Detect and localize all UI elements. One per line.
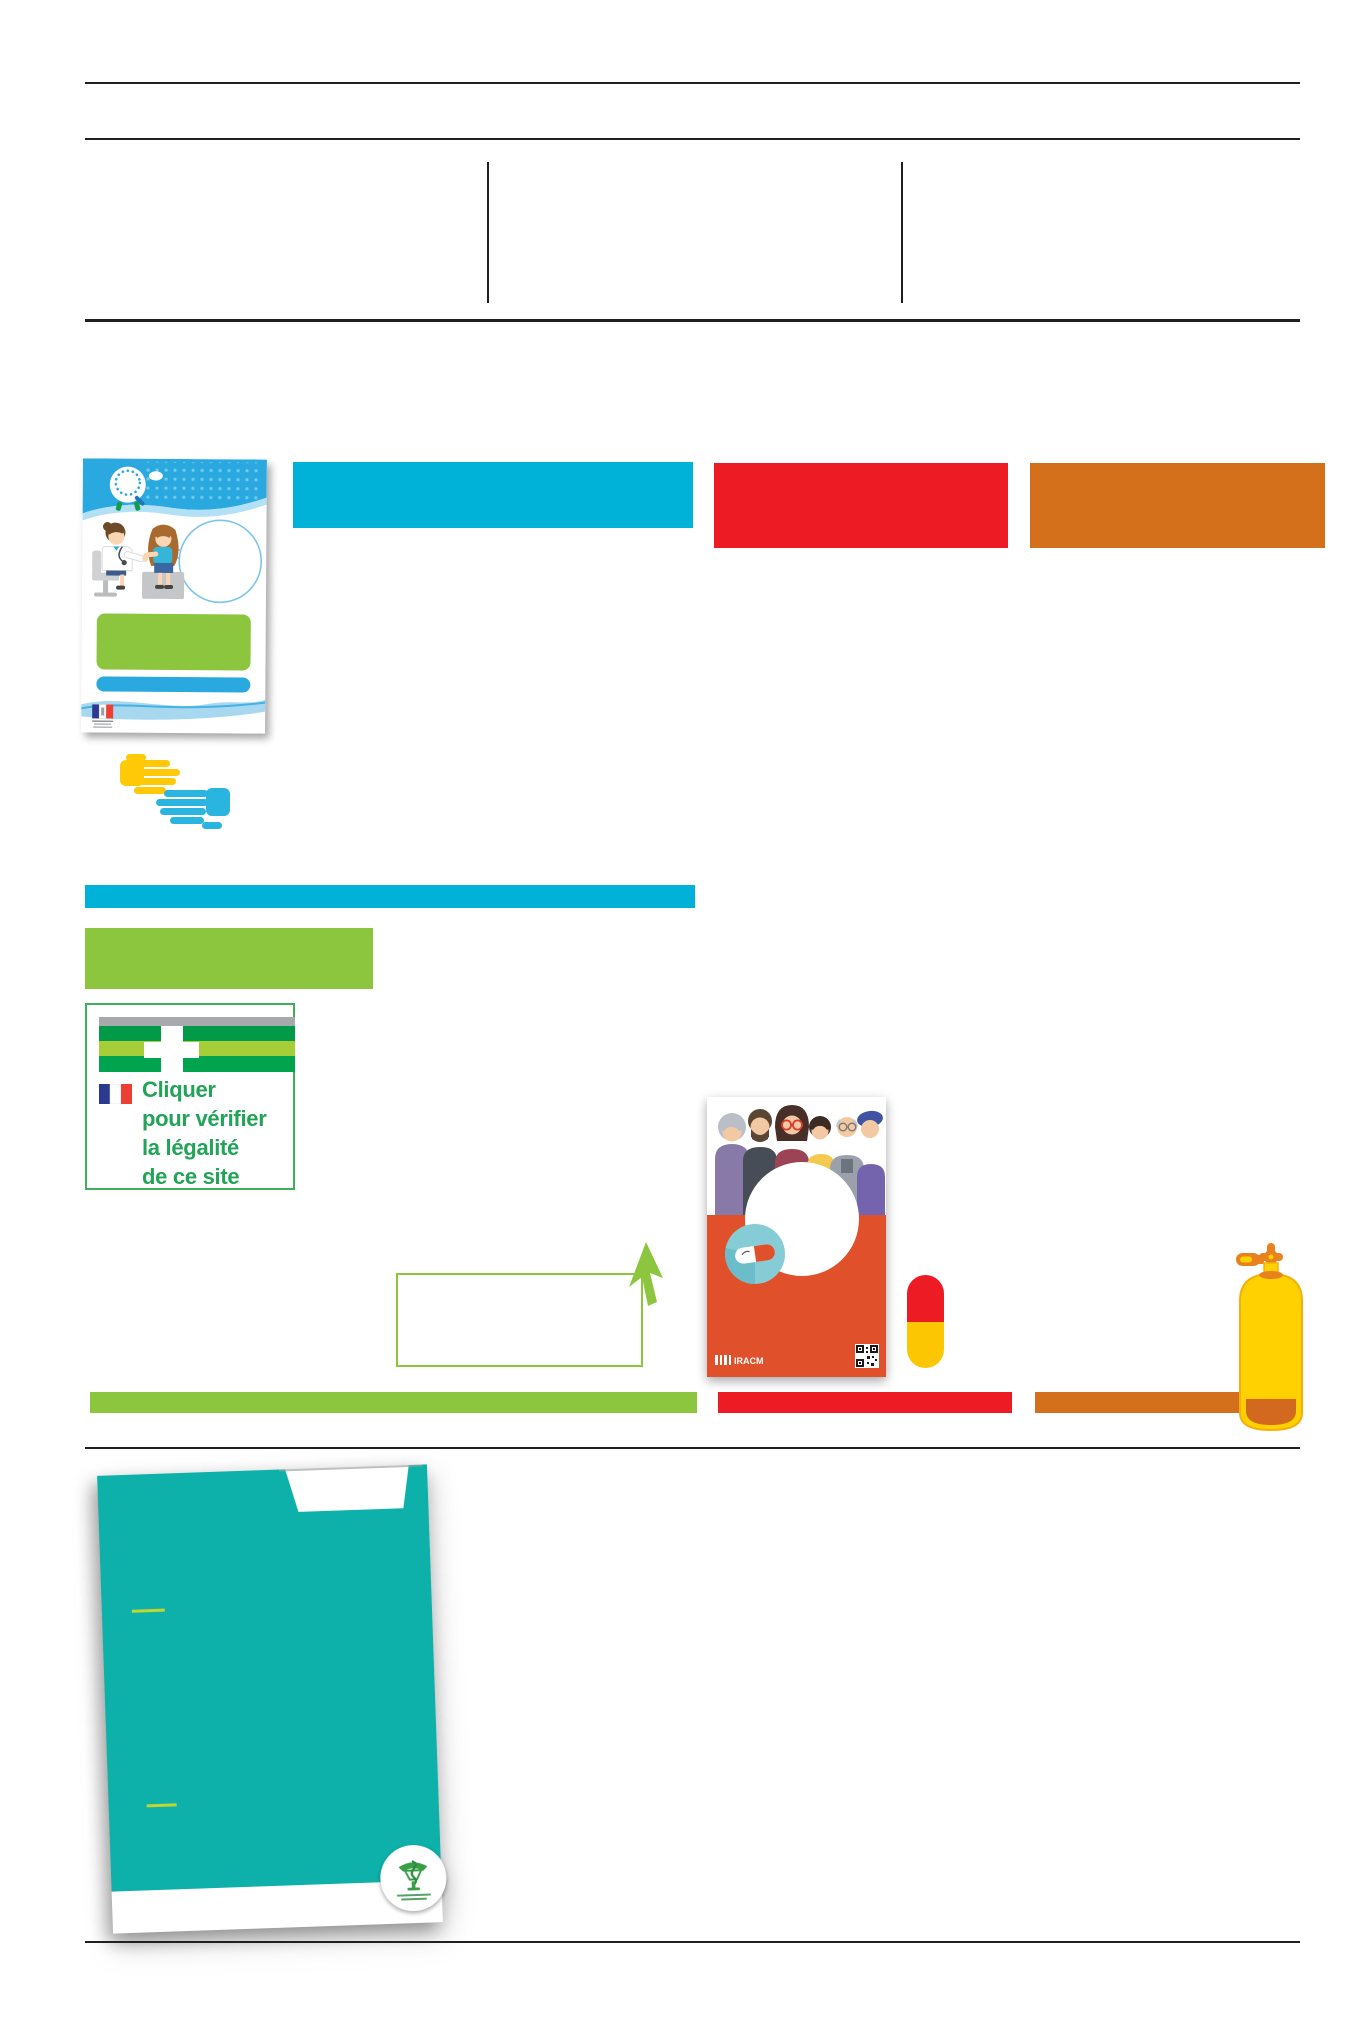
hands-icon [118, 752, 233, 830]
badge-text-line-1 [397, 1894, 431, 1897]
doctor-patient-illustration [92, 519, 262, 602]
summary-table [85, 162, 1300, 303]
capsule-badge [725, 1224, 785, 1284]
badge-text-line-2 [401, 1898, 427, 1901]
verify-line-1: Cliquer [142, 1075, 292, 1104]
top-rule-1 [85, 82, 1300, 84]
envelope-dash-2 [147, 1803, 177, 1807]
mid-rule [85, 1447, 1300, 1449]
bottom-rule [85, 1941, 1300, 1943]
iracm-label: IRACM [734, 1356, 764, 1366]
table-bottom-rule [85, 319, 1300, 322]
table-column-2 [489, 162, 899, 303]
leaflet-cyan-bar [96, 676, 250, 692]
table-column-3 [903, 162, 1300, 303]
leaflet-green-panel [96, 613, 250, 670]
footer-bar-orange [1035, 1392, 1250, 1413]
envelope-dash-1 [132, 1609, 165, 1613]
pharmacy-cross-icon [99, 1017, 295, 1072]
headline-block-red [714, 463, 1008, 548]
verify-line-2: pour vérifier [142, 1104, 292, 1133]
cursor-icon [616, 1240, 668, 1310]
rf-logo-icon [92, 704, 113, 727]
doctor-patient [81, 458, 267, 733]
top-rule-2 [85, 138, 1300, 140]
verify-site-logo[interactable]: Cliquer pour vérifier la légalité de ce … [85, 1003, 295, 1190]
capsule-icon [907, 1275, 944, 1368]
yellow-hand [120, 754, 180, 794]
capsule-yellow-half [907, 1322, 944, 1369]
verify-line-3: la légalité [142, 1133, 292, 1162]
subhead-block-green [85, 928, 373, 989]
table-column-1 [85, 162, 485, 303]
iracm-poster: IRACM [707, 1097, 886, 1377]
cyan-hand [156, 788, 230, 829]
section-bar-cyan [85, 885, 695, 908]
capsule-red-half [907, 1275, 944, 1322]
footer-bar-red [718, 1392, 1012, 1413]
gas-cylinder-icon [1234, 1241, 1308, 1433]
envelope [97, 1464, 443, 1933]
headline-block-cyan [293, 462, 693, 528]
document-page: Cliquer pour vérifier la légalité de ce … [0, 0, 1361, 2041]
qr-code-icon [855, 1344, 879, 1368]
caduceus-icon [395, 1855, 432, 1892]
french-flag-icon [99, 1084, 132, 1104]
headline-block-orange [1030, 463, 1325, 548]
click-placeholder-box [396, 1273, 643, 1367]
leaflet-thumbnail [81, 458, 267, 733]
verify-site-text: Cliquer pour vérifier la légalité de ce … [142, 1075, 292, 1191]
verify-line-4: de ce site [142, 1162, 292, 1191]
footer-bar-green [90, 1392, 697, 1413]
halftone-dots [143, 462, 263, 505]
